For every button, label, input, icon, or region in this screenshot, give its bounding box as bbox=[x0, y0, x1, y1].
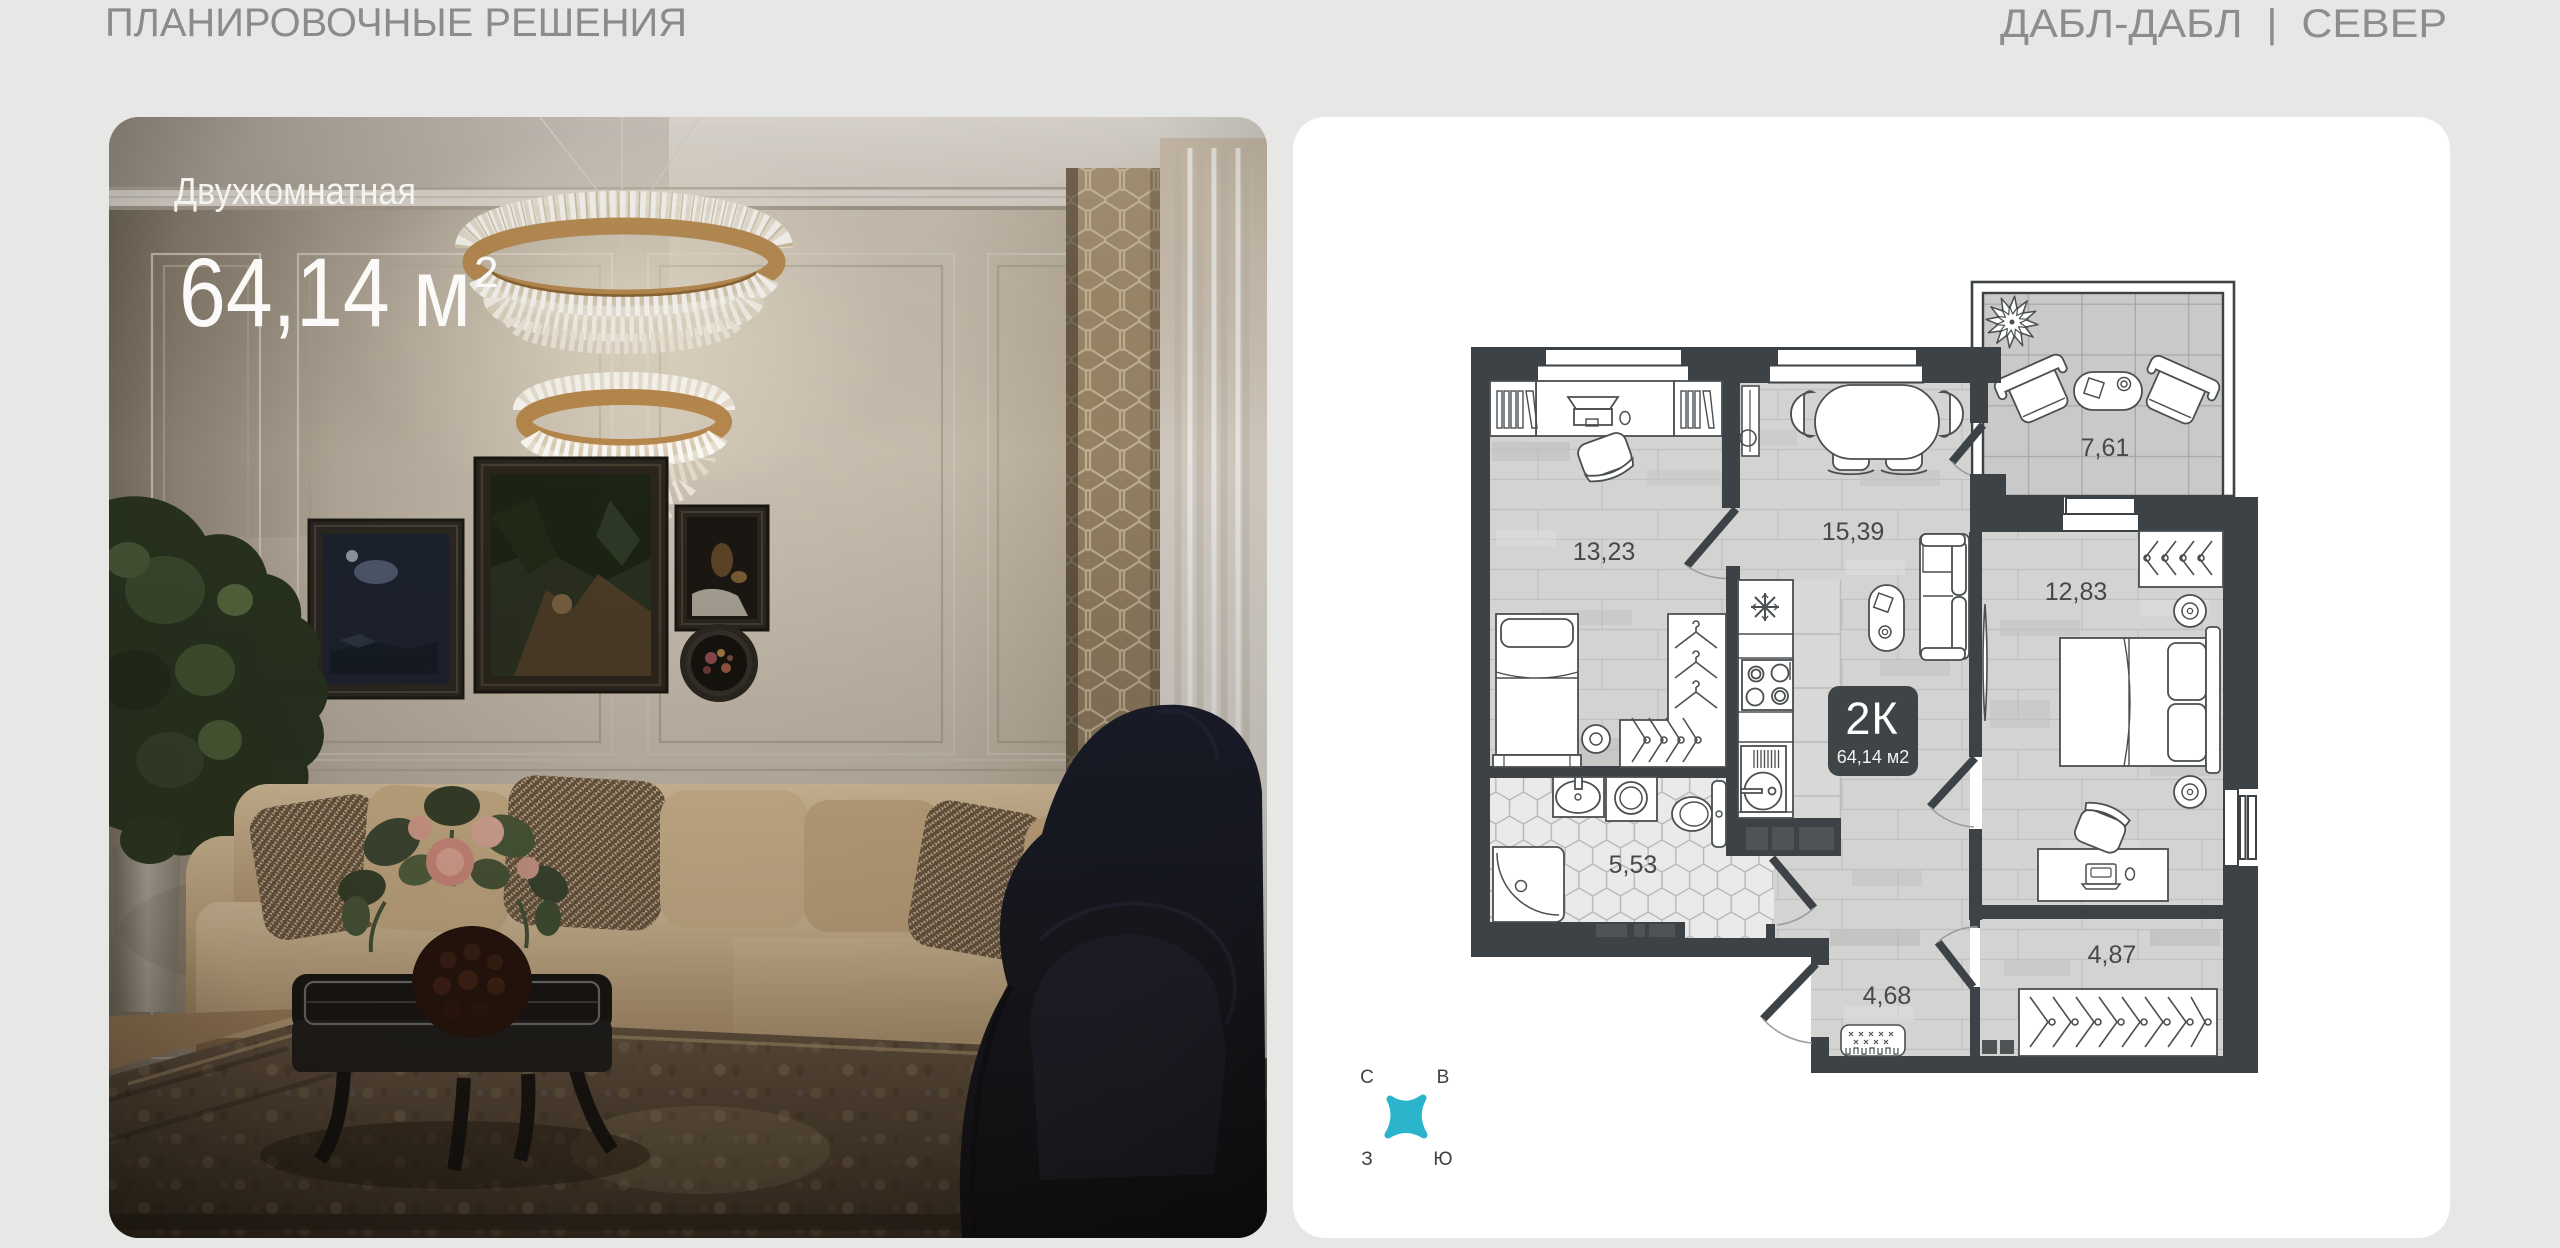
svg-text:4,87: 4,87 bbox=[2088, 941, 2137, 969]
svg-text:64,14 м: 64,14 м bbox=[179, 238, 471, 347]
svg-text:2: 2 bbox=[474, 248, 498, 297]
svg-text:ПЛАНИРОВОЧНЫЕ РЕШЕНИЯ: ПЛАНИРОВОЧНЫЕ РЕШЕНИЯ bbox=[105, 1, 687, 45]
svg-text:7,61: 7,61 bbox=[2081, 434, 2130, 462]
svg-text:12,83: 12,83 bbox=[2045, 578, 2108, 606]
svg-text:Двухкомнатная: Двухкомнатная bbox=[174, 171, 416, 213]
svg-text:2К: 2К bbox=[1845, 693, 1898, 744]
svg-text:15,39: 15,39 bbox=[1822, 518, 1885, 546]
svg-text:4,68: 4,68 bbox=[1863, 982, 1912, 1010]
svg-text:ДАБЛ-ДАБЛ | СЕВЕР: ДАБЛ-ДАБЛ | СЕВЕР bbox=[2000, 2, 2447, 46]
svg-text:5,53: 5,53 bbox=[1609, 851, 1658, 879]
svg-text:С: С bbox=[1360, 1067, 1374, 1088]
svg-text:13,23: 13,23 bbox=[1573, 538, 1636, 566]
svg-text:64,14 м2: 64,14 м2 bbox=[1837, 747, 1909, 767]
svg-text:З: З bbox=[1361, 1149, 1372, 1170]
svg-text:Ю: Ю bbox=[1433, 1149, 1452, 1170]
svg-text:В: В bbox=[1437, 1067, 1450, 1088]
